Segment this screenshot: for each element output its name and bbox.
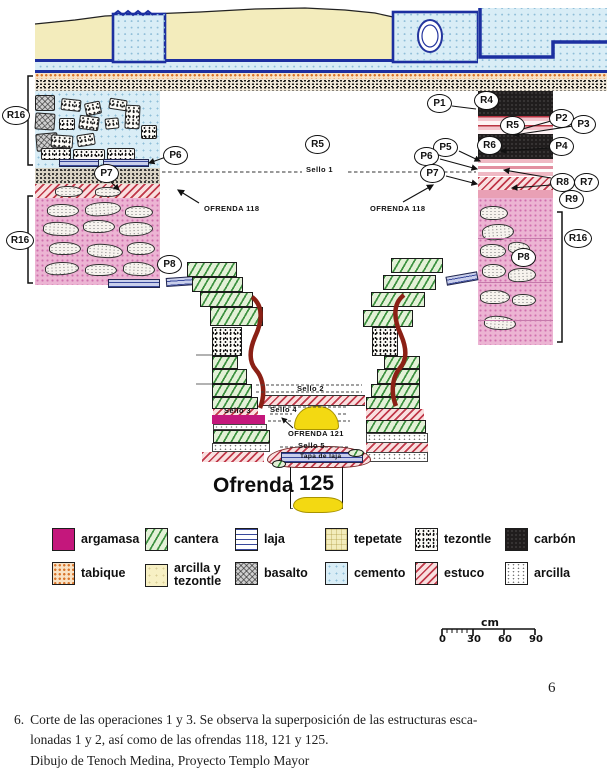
cantera-step [371,292,425,307]
bedding-line [478,320,553,321]
bedding-line [478,282,553,283]
tezontle-stone [51,134,74,149]
cantera-step [187,262,237,277]
cantera-step [192,277,243,292]
figure-caption: 6. Corte de las operaciones 1 y 3. Se ob… [14,710,589,771]
pink-core-left [35,198,160,285]
label-r16-right: R16 [564,229,592,248]
tezontle-stone [104,117,119,129]
estuco-band-left [35,184,160,198]
estuco-base-left [202,452,264,462]
label-p1: P1 [427,94,452,113]
legend-label: tepetate [354,533,402,546]
stone-blob [95,187,121,197]
stone-blob [484,315,517,331]
cantera-step [383,275,436,290]
legend-label: laja [264,533,285,546]
stone-blob [45,261,80,276]
cantera-course [366,397,420,409]
arcilla-swatch [505,562,528,585]
stone-blob [83,220,115,233]
pink-thin-layer [478,190,553,198]
laja-slab [445,271,478,285]
sello-3-label: Sello 3 [224,406,251,415]
stone-blob [85,201,122,217]
scale-tick-90: 90 [529,634,543,645]
stone-blob [125,206,153,218]
stone-blob [127,242,155,255]
stone-blob [123,261,156,277]
legend-label: carbón [534,533,576,546]
basalt-stone [35,95,55,111]
label-r9: R9 [559,190,584,209]
legend-label: arcilla y tezontle [174,562,236,588]
rubble-band [35,79,607,91]
label-r16-top-left: R16 [2,106,30,125]
estuco-swatch [415,562,438,585]
legend-item: tezontle [415,528,491,551]
stone-blob [512,294,536,306]
cantera-step [200,292,253,307]
carbon-swatch [505,528,528,551]
ofrenda-125-fill [293,497,343,513]
cantera-course [366,420,426,433]
legend-item: laja [235,528,285,551]
tezontle-stone [59,118,75,130]
caption-index: 6. [14,710,24,771]
stone-blob [482,264,506,278]
tepetate-swatch [325,528,348,551]
legend-item: cantera [145,528,218,551]
basalto-swatch [235,562,258,585]
cantera-swatch [145,528,168,551]
page-number: 6 [548,680,556,697]
cantera-step [363,310,413,327]
stone-blob [55,186,83,197]
tezontle-pillar-left [212,327,242,356]
caption-line-2: lonadas 1 y 2, así como de las ofrendas … [30,730,477,750]
ofrenda-118-label-left: OFRENDA 118 [204,204,259,213]
label-p3: P3 [571,115,596,134]
legend-item: basalto [235,562,308,585]
tezontle-stone [141,125,157,139]
ofrenda-125-number: 125 [291,472,342,496]
ofrenda-118-label-right: OFRENDA 118 [370,204,425,213]
laja-slab [59,159,99,167]
green-pebble [272,460,286,468]
label-r7: R7 [574,173,599,192]
tezontle-stone [78,115,100,132]
label-p6-left: P6 [163,146,188,165]
legend-item: carbón [505,528,576,551]
label-r4: R4 [474,91,499,110]
stone-blob [119,221,154,237]
legend-label: basalto [264,567,308,580]
arcilla-y-tezontle-swatch [145,564,168,587]
arcilla-base-right [366,452,428,462]
stone-blob [480,206,508,220]
arcilla-band [212,443,270,452]
label-r5-band: R5 [500,116,525,135]
tabique-swatch [52,562,75,585]
legend-label: tabique [81,567,125,580]
sello-1-label: Sello 1 [306,165,333,174]
legend-label: cemento [354,567,405,580]
legend-label: arcilla [534,567,570,580]
label-r5-middle: R5 [305,135,330,154]
cantera-step [210,307,263,326]
legend-item: argamasa [52,528,139,551]
legend-item: arcilla y tezontle [145,562,236,588]
cantera-course [384,356,420,369]
left-masonry-block [35,91,160,168]
argamasa-swatch [52,528,75,551]
label-p8-left: P8 [157,255,182,274]
sello-2-label: Sello 2 [297,384,324,393]
tezontle-stone [76,133,96,148]
stone-blob [87,243,124,259]
legend-label: tezontle [444,533,491,546]
stone-blob [508,267,537,282]
legend-item: arcilla [505,562,570,585]
cantera-course [371,384,420,397]
cantera-course [212,369,247,384]
label-r16-bottom-left: R16 [6,231,34,250]
stone-blob [480,244,506,258]
label-p8-right: P8 [511,248,536,267]
cantera-course [212,356,238,369]
cantera-course [377,369,420,384]
legend-item: tepetate [325,528,402,551]
bedding-line [478,238,553,239]
legend-item: estuco [415,562,484,585]
cantera-step [391,258,443,273]
tepetate-ground [35,8,393,64]
laja-slab [108,279,160,288]
laja-swatch [235,528,258,551]
figure-page: R16 P6 P7 R16 P8 R5 P1 R4 P2 P3 R5 R6 P4… [0,0,607,774]
tezontle-stone [60,98,81,112]
argamasa-band [212,415,265,424]
estuco-band-right [366,409,424,420]
ofrenda-125-word: Ofrenda [213,474,285,498]
tezontle-swatch [415,528,438,551]
estuco-hatch-layer-r8 [478,177,553,190]
stone-blob [49,242,81,255]
sello-5-label: Sello 5 [298,441,325,450]
green-pebble [348,449,364,457]
cemento-swatch [325,562,348,585]
stone-blob [480,290,510,304]
label-p7-left: P7 [94,164,119,183]
tezontle-stone [84,100,102,116]
caption-line-1: Corte de las operaciones 1 y 3. Se obser… [30,710,477,730]
label-p6-right: P6 [414,147,439,166]
tezontle-pillar-right [372,327,398,356]
label-r6: R6 [477,136,502,155]
scale-tick-0: 0 [439,634,446,645]
sello-4-label: Sello 4 [270,405,297,414]
scale-tick-30: 30 [467,634,481,645]
legend-label: argamasa [81,533,139,546]
caption-text: Corte de las operaciones 1 y 3. Se obser… [30,710,477,771]
label-p4: P4 [549,137,574,156]
legend-label: cantera [174,533,218,546]
legend-label: estuco [444,567,484,580]
arcilla-band [366,433,428,443]
legend-item: tabique [52,562,125,585]
scale-tick-60: 60 [498,634,512,645]
stone-blob [47,204,79,217]
stone-blob [85,264,117,276]
cantera-course [212,384,252,397]
estuco-band-right2 [366,443,428,452]
pink-core-right [478,198,553,345]
thin-floor-layers [478,159,553,177]
tezontle-stone [124,105,140,130]
legend-item: cemento [325,562,405,585]
ofrenda-121-label: OFRENDA 121 [288,429,344,438]
stone-blob [43,221,80,237]
basalt-stone [34,112,55,130]
tapa-de-laja-label: Tapa de laja [300,453,342,460]
label-p7-right: P7 [420,164,445,183]
caption-line-3: Dibujo de Tenoch Medina, Proyecto Templo… [30,751,477,771]
ofrenda-121-mound [294,406,339,430]
cantera-course [213,430,270,443]
